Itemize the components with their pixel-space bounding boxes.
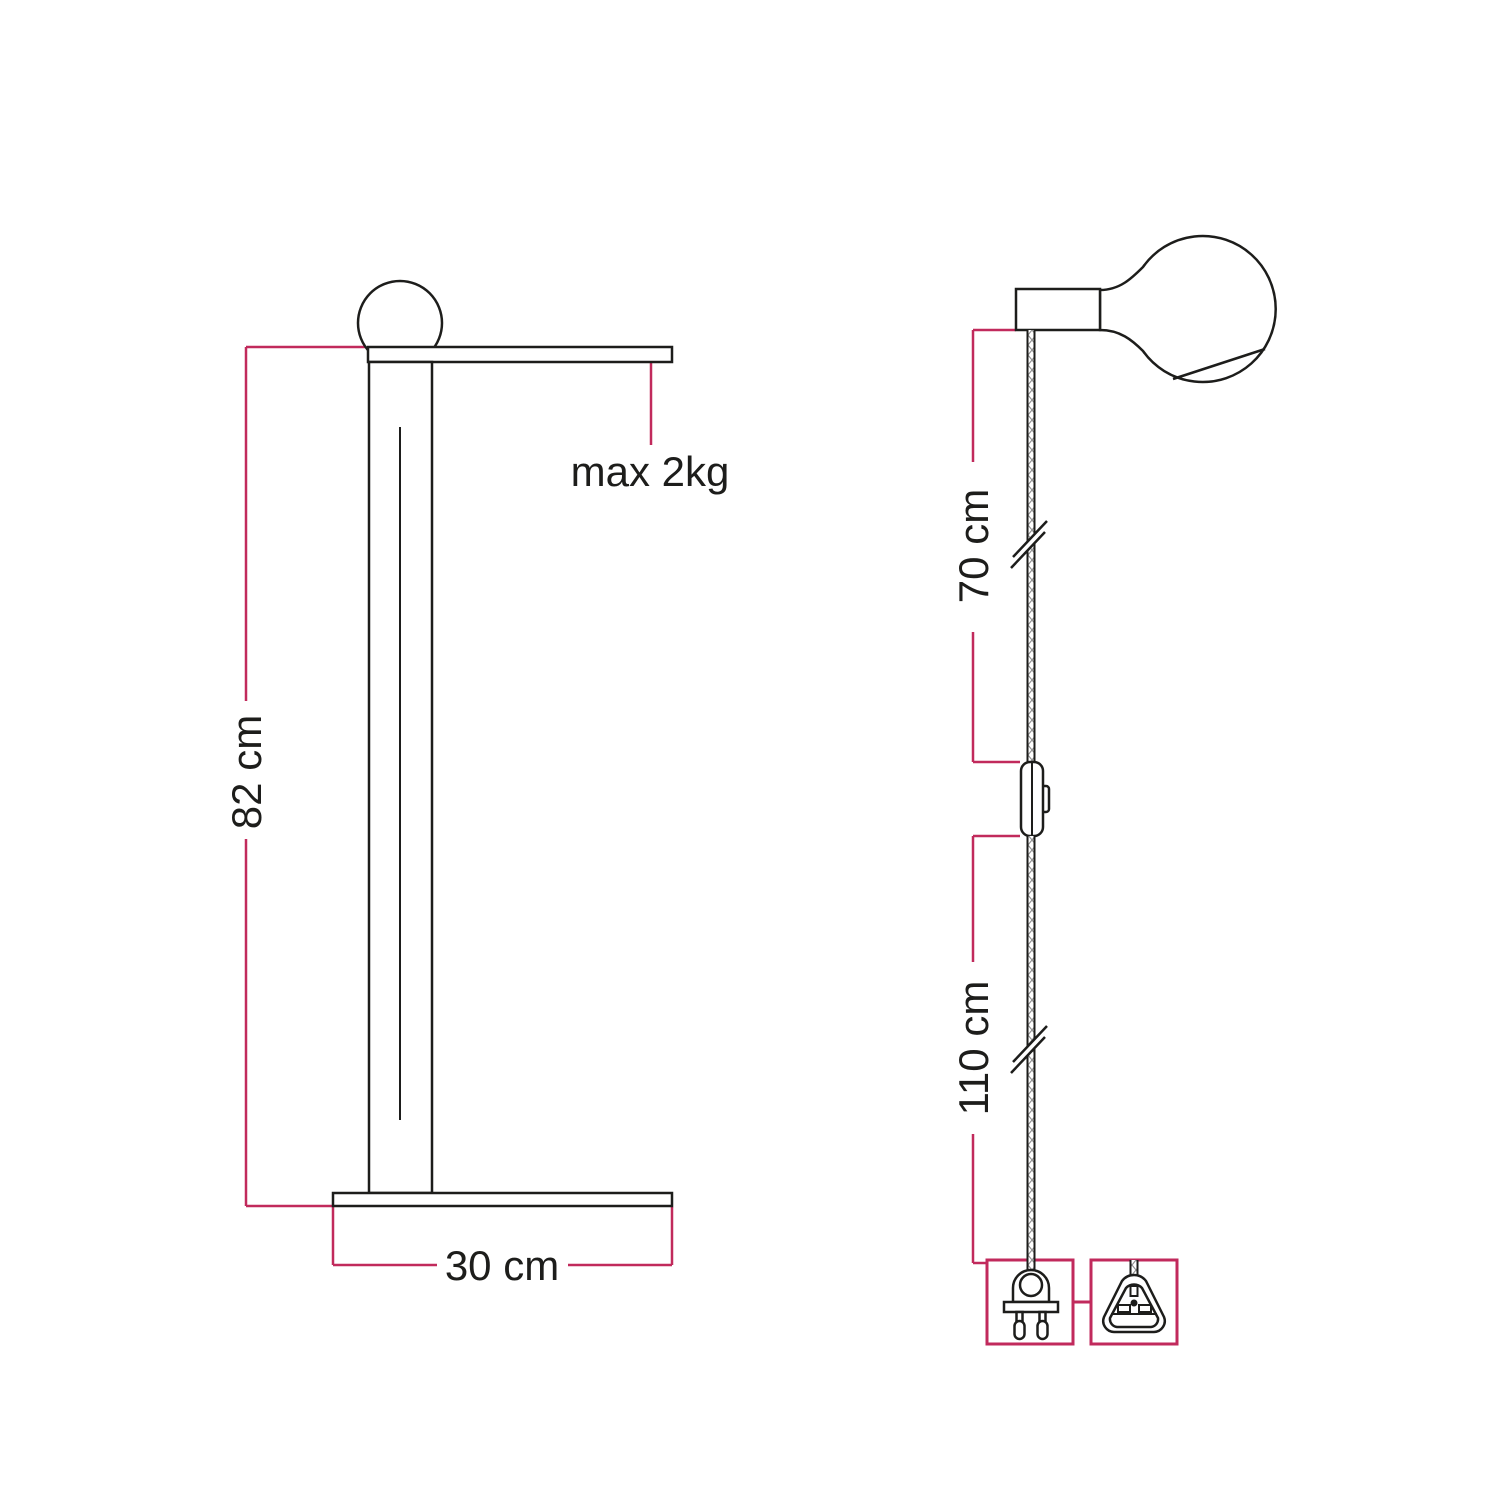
eu-two-pin-plug-icon (1004, 1270, 1058, 1339)
max-load-label: max 2kg (571, 448, 730, 495)
lamp-shelf-arm (368, 347, 672, 362)
lower-cable-label: 110 cm (950, 981, 997, 1116)
inline-switch-icon (1021, 762, 1049, 836)
eu-plug-face-circle (1020, 1274, 1042, 1296)
lower-cable-dimension: 110 cm (950, 836, 1020, 1263)
base-width-dimension: 30 cm (333, 1207, 672, 1289)
base-width-label: 30 cm (445, 1242, 559, 1289)
eu-plug-pin-tip-right (1038, 1321, 1048, 1339)
upper-cable-label: 70 cm (950, 489, 997, 603)
max-load-dimension: max 2kg (571, 363, 730, 495)
dimension-diagram: 82 cm 30 cm max 2kg 70 cm 110 cm (0, 0, 1500, 1500)
lamp-holder (1016, 289, 1100, 330)
uk-plug-screw-dot (1131, 1300, 1138, 1307)
lamp-base-plate (333, 1193, 672, 1206)
eu-plug-pin-tip-left (1015, 1321, 1025, 1339)
lamp-height-dimension: 82 cm (223, 347, 366, 1206)
dimension-diagram-page: 82 cm 30 cm max 2kg 70 cm 110 cm (0, 0, 1500, 1500)
lamp-height-label: 82 cm (223, 715, 270, 829)
cable-assembly-view (1004, 236, 1276, 1339)
light-bulb-icon (1100, 236, 1276, 382)
lamp-side-view (333, 281, 672, 1206)
eu-plug-collar (1004, 1302, 1058, 1312)
upper-cable-dimension: 70 cm (950, 330, 1020, 762)
uk-three-pin-plug-icon (1103, 1260, 1165, 1332)
